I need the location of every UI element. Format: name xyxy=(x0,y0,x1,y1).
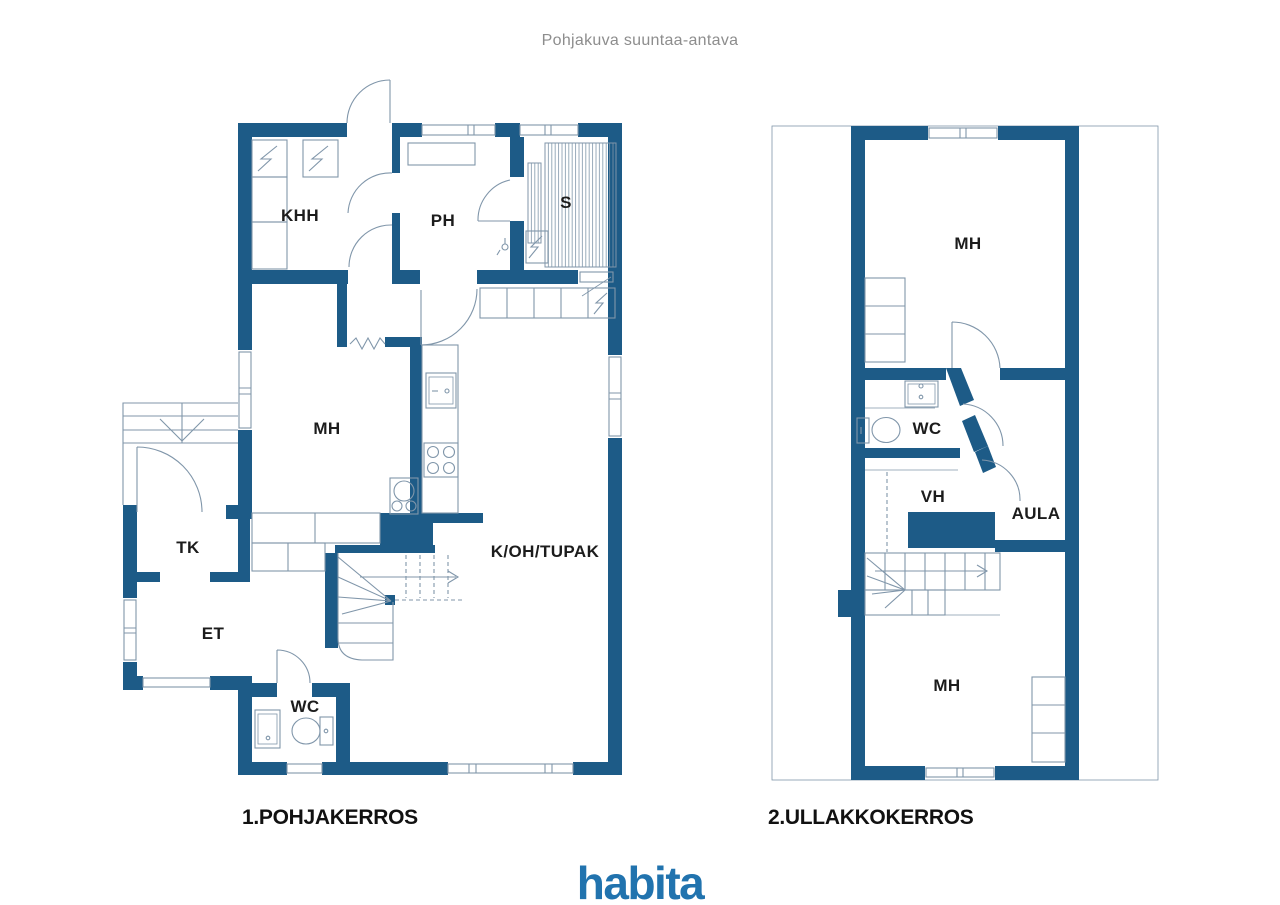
lightning-icon xyxy=(594,293,607,314)
stairs-arrow-icon xyxy=(360,571,458,583)
ground-stairs xyxy=(338,553,463,660)
chimney xyxy=(908,512,995,548)
attic-floor-caption: 2.ULLAKKOKERROS xyxy=(768,806,974,830)
closet-row xyxy=(252,513,380,543)
floorplan-page: Pohjakuva suuntaa-antava xyxy=(0,0,1280,905)
room-label-mh-bottom: MH xyxy=(933,676,960,695)
sauna-benches xyxy=(545,143,616,267)
mh-door-arc xyxy=(952,322,1000,368)
kitchen-counter xyxy=(422,345,458,513)
room-label-mh: MH xyxy=(313,419,340,438)
floor-plan-svg: KHH PH S MH TK ET WC K/OH/TUPAK xyxy=(0,0,1280,905)
room-label-vh: VH xyxy=(921,487,945,506)
room-label-et: ET xyxy=(202,624,225,643)
room-label-mh-top: MH xyxy=(954,234,981,253)
lightning-icon xyxy=(258,146,277,171)
kitchen-door-arc xyxy=(421,289,477,345)
attic-stairs xyxy=(865,553,1000,615)
wc-toilet xyxy=(292,718,320,744)
habita-logo: habita xyxy=(0,856,1280,905)
wardrobe xyxy=(865,278,905,362)
ground-floor-plan: KHH PH S MH TK ET WC K/OH/TUPAK xyxy=(123,80,622,775)
entrance-door-arc xyxy=(137,447,202,512)
lightning-icon xyxy=(309,146,328,171)
room-label-khh: KHH xyxy=(281,206,319,225)
attic-floor-plan: MH WC VH AULA MH xyxy=(772,126,1158,780)
khh-mh-door-arc xyxy=(349,225,392,267)
partition-zigzag xyxy=(350,338,385,349)
room-label-s: S xyxy=(560,193,572,212)
wardrobe xyxy=(1032,677,1065,762)
room-label-koh: K/OH/TUPAK xyxy=(491,542,600,561)
khh-cabinet xyxy=(252,222,287,269)
shower-icon xyxy=(502,244,508,250)
stairs-arrow-icon xyxy=(875,565,987,577)
room-label-wc: WC xyxy=(290,697,319,716)
wc-sink xyxy=(255,710,280,748)
khh-door-arc xyxy=(348,173,392,213)
room-label-wc: WC xyxy=(912,419,941,438)
fireplace xyxy=(380,513,433,547)
sauna-door-arc xyxy=(478,180,510,221)
sauna-bench-small xyxy=(528,163,541,243)
attic-doors xyxy=(952,322,1020,501)
wc-door-arc xyxy=(277,650,310,683)
roof-outline xyxy=(772,126,1158,780)
fridge xyxy=(426,373,456,408)
room-label-aula: AULA xyxy=(1012,504,1061,523)
ground-fixtures xyxy=(252,140,616,748)
front-door-arc xyxy=(347,80,390,123)
entrance-steps xyxy=(123,403,238,505)
wc-sink xyxy=(905,381,938,407)
room-label-tk: TK xyxy=(176,538,200,557)
ground-doors xyxy=(137,80,510,683)
ground-floor-caption: 1.POHJAKERROS xyxy=(242,806,418,830)
ph-bench xyxy=(408,143,475,165)
room-label-ph: PH xyxy=(431,211,455,230)
